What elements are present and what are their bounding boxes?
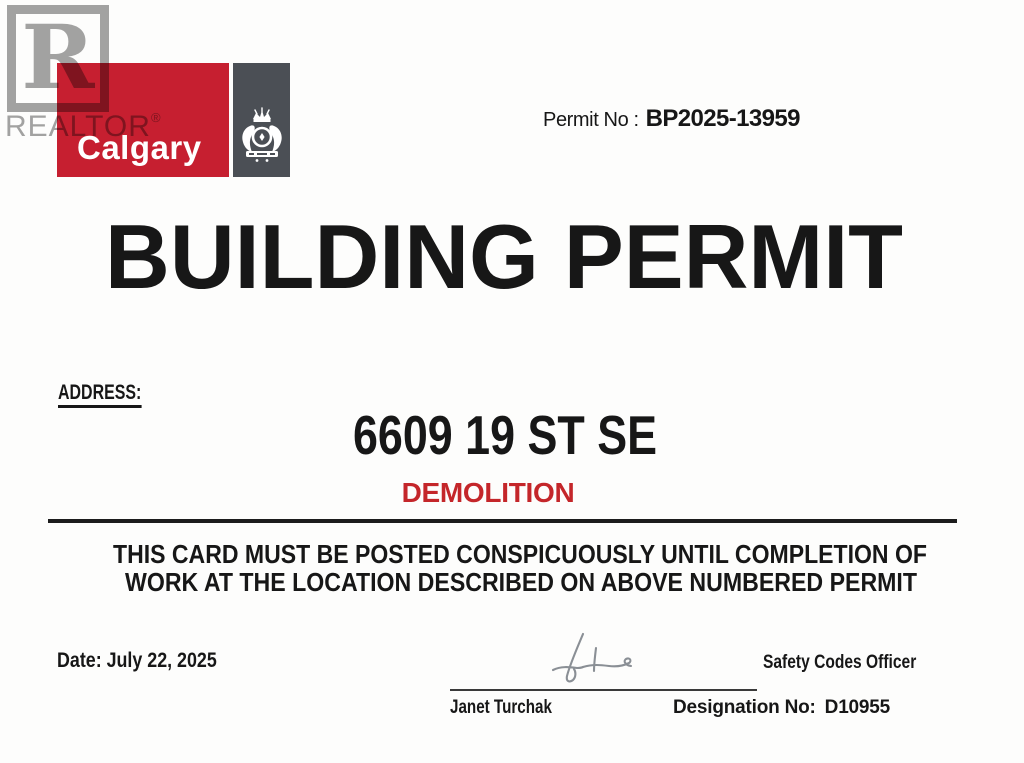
posting-notice-line1: THIS CARD MUST BE POSTED CONSPICUOUSLY U… bbox=[113, 539, 927, 569]
realtor-r-letter: R bbox=[21, 13, 94, 101]
address-value: 6609 19 ST SE bbox=[350, 400, 660, 462]
designation-row: Designation No: D10955 bbox=[673, 697, 890, 719]
issue-date-label: Date: bbox=[57, 649, 102, 672]
posting-notice: THIS CARD MUST BE POSTED CONSPICUOUSLY U… bbox=[0, 535, 1024, 601]
designation-label: Designation No: bbox=[673, 697, 816, 719]
document-title-text: BUILDING PERMIT bbox=[105, 207, 903, 302]
work-type-label: DEMOLITION bbox=[0, 477, 976, 509]
officer-title: Safety Codes Officer bbox=[763, 652, 916, 674]
building-permit-card: Calgary R REALTOR® Permit No : bbox=[0, 0, 1024, 763]
calgary-crest-icon bbox=[236, 105, 288, 163]
document-title: BUILDING PERMIT bbox=[105, 207, 903, 302]
issue-date-value: July 22, 2025 bbox=[107, 649, 217, 672]
realtor-r-logo: R bbox=[7, 5, 109, 112]
address-value-text: 6609 19 ST SE bbox=[353, 404, 657, 462]
permit-number-row: Permit No : BP2025-13959 bbox=[543, 105, 800, 133]
address-label: ADDRESS: bbox=[58, 381, 141, 405]
issue-date: Date: July 22, 2025 bbox=[57, 649, 217, 673]
signature-line bbox=[450, 689, 757, 691]
divider-line bbox=[48, 519, 957, 523]
calgary-crest-box bbox=[233, 63, 290, 177]
permit-number-label: Permit No : bbox=[543, 109, 639, 132]
officer-name: Janet Turchak bbox=[450, 697, 552, 719]
posting-notice-line2: WORK AT THE LOCATION DESCRIBED ON ABOVE … bbox=[125, 567, 917, 597]
realtor-watermark-label: REALTOR® bbox=[5, 110, 161, 144]
designation-value: D10955 bbox=[825, 697, 890, 719]
permit-number-value: BP2025-13959 bbox=[646, 105, 800, 133]
officer-signature bbox=[543, 630, 637, 688]
registered-trademark-icon: ® bbox=[151, 110, 161, 125]
